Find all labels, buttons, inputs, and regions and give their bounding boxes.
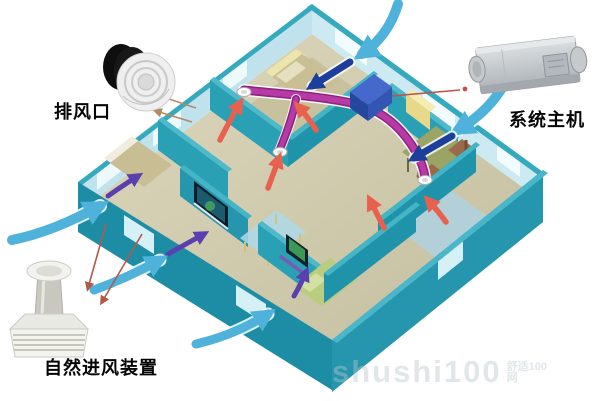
system-main-unit-icon bbox=[467, 35, 590, 95]
system-unit-label: 系统主机 bbox=[509, 106, 585, 132]
natural-air-inlet-icon bbox=[10, 261, 88, 357]
ceiling-exhaust-vent-icon bbox=[103, 44, 175, 111]
air-inlet-label: 自然进风装置 bbox=[44, 354, 158, 380]
ventilation-diagram bbox=[0, 0, 600, 401]
diagram-canvas: 排风口 系统主机 自然进风装置 shushi100 舒适100网 bbox=[0, 0, 600, 401]
exhaust-outlet-label: 排风口 bbox=[54, 98, 111, 124]
